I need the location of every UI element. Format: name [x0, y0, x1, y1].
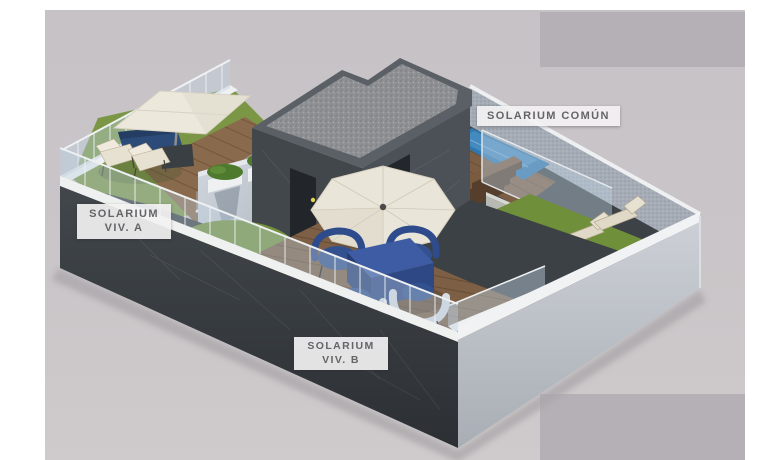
label-a-line2: VIV. A — [105, 222, 144, 234]
label-solarium-viv-a: SOLARIUM VIV. A — [77, 204, 171, 239]
masked-block-bottom-right — [540, 394, 745, 460]
label-b-line1: SOLARIUM — [307, 340, 374, 352]
umbrella-b-finial — [380, 204, 386, 210]
label-b-line2: VIV. B — [322, 354, 360, 366]
wall-light — [311, 198, 315, 202]
architectural-render-page: SOLARIUM VIV. A SOLARIUM COMÚN SOLARIUM … — [0, 0, 770, 460]
label-comun-text: SOLARIUM COMÚN — [487, 110, 610, 122]
label-solarium-comun: SOLARIUM COMÚN — [477, 106, 620, 126]
label-solarium-viv-b: SOLARIUM VIV. B — [294, 337, 388, 370]
label-a-line1: SOLARIUM — [89, 208, 159, 220]
masked-block-top-right — [540, 12, 745, 67]
